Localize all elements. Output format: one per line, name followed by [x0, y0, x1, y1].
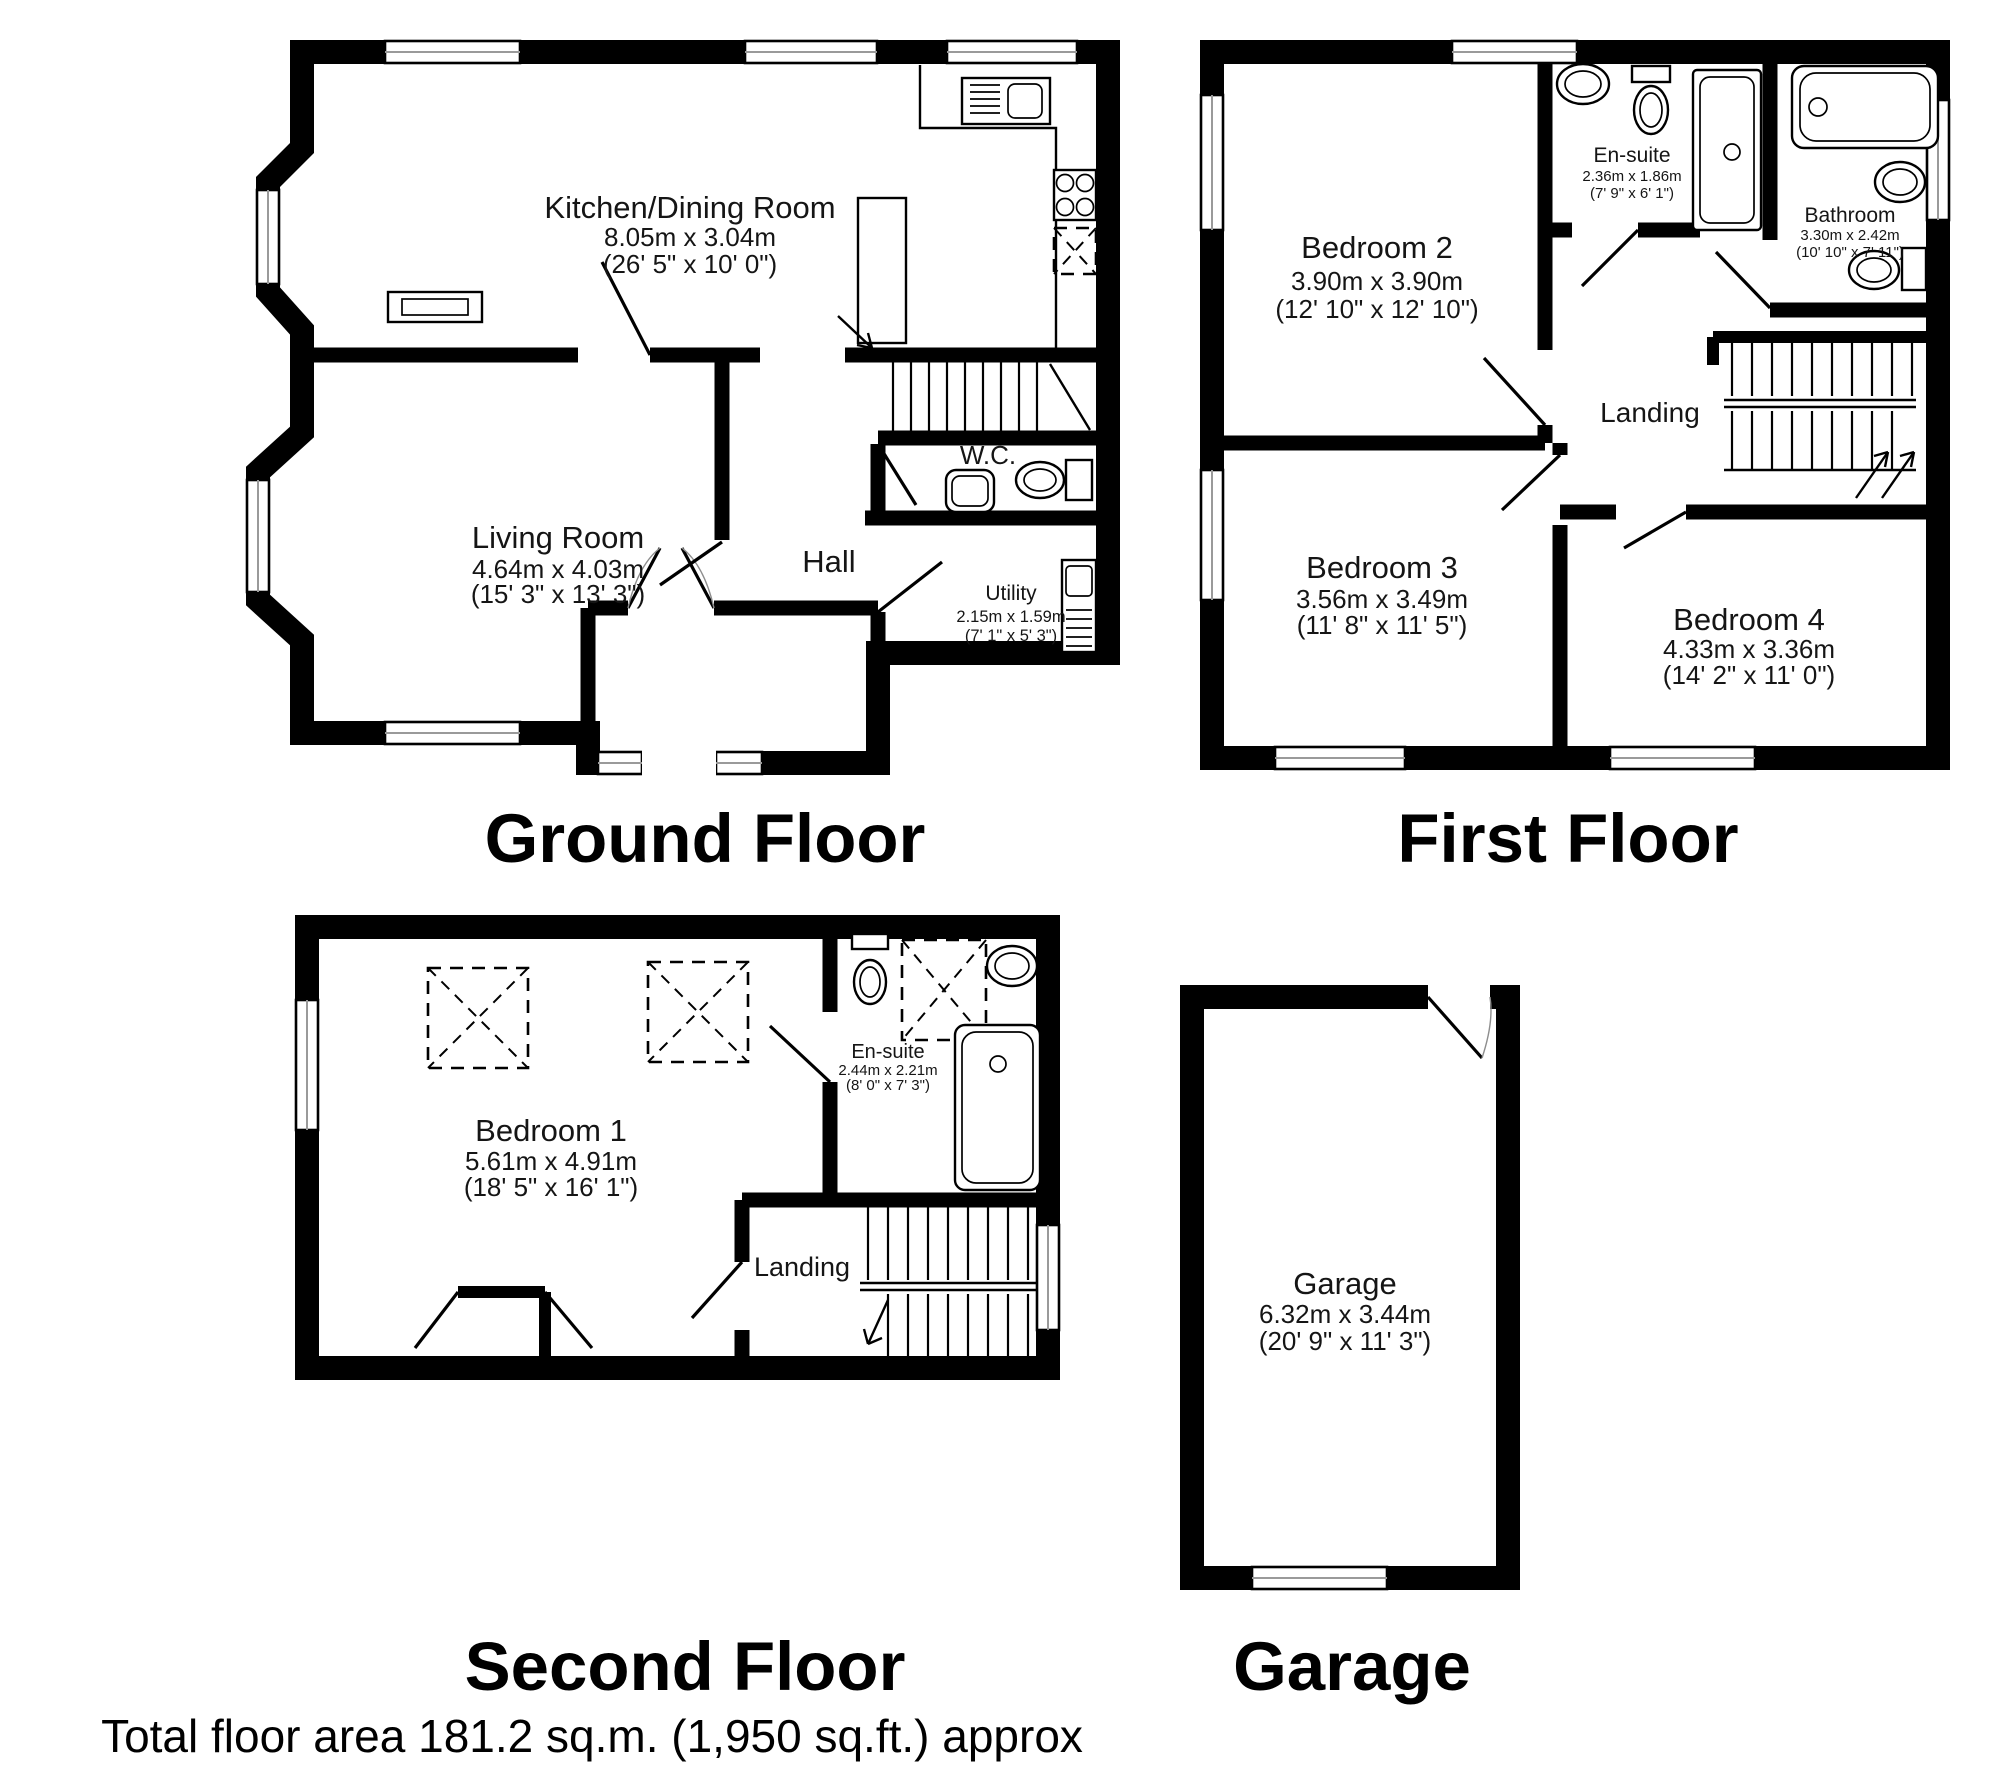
room-label-bedroom2: Bedroom 2 3.90m x 3.90m (12' 10" x 12' 1… — [1275, 230, 1478, 324]
room-label-landing: Landing — [1600, 397, 1700, 428]
svg-text:3.30m x 2.42m: 3.30m x 2.42m — [1800, 227, 1899, 244]
living-room-door — [660, 542, 722, 585]
stairs-arrow — [1856, 452, 1914, 498]
svg-text:Living Room: Living Room — [472, 520, 644, 555]
ensuite-toilet-icon — [1632, 66, 1670, 134]
svg-text:(12' 10" x 12' 10"): (12' 10" x 12' 10") — [1275, 294, 1478, 324]
svg-text:Landing: Landing — [754, 1252, 850, 1282]
appliance-space — [1054, 228, 1096, 274]
window — [385, 722, 520, 744]
svg-text:6.32m x 3.44m: 6.32m x 3.44m — [1259, 1299, 1431, 1329]
window — [296, 1000, 318, 1130]
garage-side-door — [1428, 984, 1491, 1058]
svg-text:Bedroom 1: Bedroom 1 — [475, 1113, 627, 1148]
room-label-living: Living Room 4.64m x 4.03m (15' 3" x 13' … — [471, 520, 645, 609]
floorplan-drawing: Kitchen/Dining Room 8.05m x 3.04m (26' 5… — [0, 0, 2000, 1785]
bedroom4-door — [1624, 512, 1686, 548]
window — [1275, 747, 1405, 769]
svg-text:(15' 3" x 13' 3"): (15' 3" x 13' 3") — [471, 579, 645, 609]
svg-text:3.90m x 3.90m: 3.90m x 3.90m — [1291, 266, 1463, 296]
svg-text:Landing: Landing — [1600, 397, 1700, 428]
garage-title: Garage — [1233, 1628, 1471, 1705]
window — [1037, 1225, 1059, 1330]
room-label-bedroom1: Bedroom 1 5.61m x 4.91m (18' 5" x 16' 1"… — [464, 1113, 638, 1202]
cupboard-doors — [415, 1292, 592, 1348]
room-label-bedroom3: Bedroom 3 3.56m x 3.49m (11' 8" x 11' 5"… — [1296, 550, 1468, 640]
svg-text:(8' 0" x 7' 3"): (8' 0" x 7' 3") — [846, 1077, 930, 1094]
shower-icon — [1693, 70, 1761, 230]
svg-text:Bedroom 4: Bedroom 4 — [1673, 602, 1825, 637]
utility-door — [878, 562, 942, 612]
second-floor-title: Second Floor — [465, 1628, 906, 1705]
stairs — [860, 1207, 1036, 1356]
room-label-ensuite: En-suite 2.44m x 2.21m (8' 0" x 7' 3") — [838, 1041, 937, 1094]
svg-text:Bathroom: Bathroom — [1804, 204, 1895, 227]
bath-icon — [955, 1025, 1040, 1190]
window — [1252, 1567, 1387, 1589]
room-label-bedroom4: Bedroom 4 4.33m x 3.36m (14' 2" x 11' 0"… — [1663, 602, 1835, 690]
window — [247, 480, 269, 592]
total-floor-area: Total floor area 181.2 sq.m. (1,950 sq.f… — [101, 1710, 1083, 1762]
utility-sink-icon — [1062, 560, 1096, 652]
svg-text:Utility: Utility — [985, 582, 1037, 605]
window — [1452, 41, 1577, 63]
fireplace — [388, 292, 482, 322]
room-label-bathroom: Bathroom 3.30m x 2.42m (10' 10" x 7' 11"… — [1796, 204, 1904, 261]
ensuite-door — [770, 1026, 830, 1082]
window — [1201, 95, 1223, 230]
room-label-hall: Hall — [802, 544, 855, 579]
svg-text:En-suite: En-suite — [851, 1041, 924, 1063]
svg-text:(14' 2" x 11' 0"): (14' 2" x 11' 0") — [1663, 660, 1835, 690]
stairs-arrow — [864, 1300, 888, 1344]
svg-text:Kitchen/Dining Room: Kitchen/Dining Room — [544, 190, 835, 225]
svg-text:(18' 5" x 16' 1"): (18' 5" x 16' 1") — [464, 1172, 638, 1202]
landing-door — [692, 1262, 742, 1318]
windows — [1201, 41, 1949, 769]
exterior-wall — [307, 927, 1048, 1368]
stairs — [1724, 343, 1916, 498]
ensuite-basin-icon — [987, 946, 1037, 986]
svg-text:En-suite: En-suite — [1593, 144, 1670, 167]
window — [947, 41, 1077, 63]
svg-text:(11' 8" x 11' 5"): (11' 8" x 11' 5") — [1297, 610, 1468, 640]
window — [257, 190, 279, 284]
garage-plan: Garage 6.32m x 3.44m (20' 9" x 11' 3") — [1192, 984, 1508, 1589]
window — [716, 752, 762, 774]
windows — [296, 1000, 1059, 1330]
svg-text:Bedroom 2: Bedroom 2 — [1301, 230, 1453, 265]
ensuite-basin-icon — [1557, 64, 1609, 104]
rooflight-dashed-square — [648, 962, 748, 1062]
room-label-utility: Utility 2.15m x 1.59m (7' 1" x 5' 3") — [956, 582, 1065, 645]
svg-text:2.15m x 1.59m: 2.15m x 1.59m — [956, 608, 1065, 626]
bathroom-basin-icon — [1875, 162, 1925, 202]
svg-text:(26' 5" x 10' 0"): (26' 5" x 10' 0") — [603, 249, 777, 279]
svg-text:2.36m x 1.86m: 2.36m x 1.86m — [1582, 168, 1681, 185]
interior-walls — [302, 355, 1108, 733]
ensuite-door — [1582, 230, 1638, 286]
svg-text:(20' 9" x 11' 3"): (20' 9" x 11' 3") — [1259, 1326, 1431, 1356]
room-label-landing: Landing — [754, 1252, 850, 1282]
svg-text:Bedroom 3: Bedroom 3 — [1306, 550, 1458, 585]
svg-text:Garage: Garage — [1293, 1266, 1396, 1301]
ground-floor-title: Ground Floor — [485, 800, 926, 877]
kitchen-island — [858, 198, 906, 343]
bath-icon — [1792, 66, 1938, 148]
second-floor-plan: Bedroom 1 5.61m x 4.91m (18' 5" x 16' 1"… — [296, 927, 1059, 1368]
svg-text:(10' 10" x 7' 11"): (10' 10" x 7' 11") — [1796, 244, 1904, 261]
svg-text:(7' 1" x 5' 3"): (7' 1" x 5' 3") — [965, 627, 1057, 645]
floorplan-page: Kitchen/Dining Room 8.05m x 3.04m (26' 5… — [0, 0, 2000, 1785]
wc-toilet-icon — [1016, 460, 1092, 500]
first-floor-plan: Bedroom 2 3.90m x 3.90m (12' 10" x 12' 1… — [1201, 41, 1949, 769]
room-label-ensuite: En-suite 2.36m x 1.86m (7' 9" x 6' 1") — [1582, 144, 1681, 202]
room-label-wc: W.C. — [960, 440, 1016, 470]
ground-floor-plan: Kitchen/Dining Room 8.05m x 3.04m (26' 5… — [247, 41, 1108, 776]
window — [385, 41, 520, 63]
bedroom2-door — [1484, 358, 1545, 425]
svg-text:W.C.: W.C. — [960, 440, 1016, 470]
svg-text:(7' 9" x 6' 1"): (7' 9" x 6' 1") — [1590, 185, 1674, 202]
svg-text:8.05m x 3.04m: 8.05m x 3.04m — [604, 222, 776, 252]
ensuite-toilet-icon — [852, 934, 888, 1004]
window — [1610, 747, 1755, 769]
window — [598, 752, 642, 774]
bathroom-door — [1716, 252, 1770, 308]
sink-icon — [962, 78, 1050, 124]
exterior-wall — [258, 52, 1108, 763]
room-label-kitchen: Kitchen/Dining Room 8.05m x 3.04m (26' 5… — [544, 190, 835, 279]
rooflight-dashed-square — [428, 968, 528, 1068]
room-label-garage: Garage 6.32m x 3.44m (20' 9" x 11' 3") — [1259, 1266, 1431, 1356]
window — [1201, 470, 1223, 600]
bedroom3-door — [1502, 455, 1560, 510]
first-floor-title: First Floor — [1397, 800, 1738, 877]
window — [745, 41, 877, 63]
hob-icon — [1054, 170, 1096, 220]
svg-text:Hall: Hall — [802, 544, 855, 579]
wc-basin-icon — [946, 470, 994, 512]
